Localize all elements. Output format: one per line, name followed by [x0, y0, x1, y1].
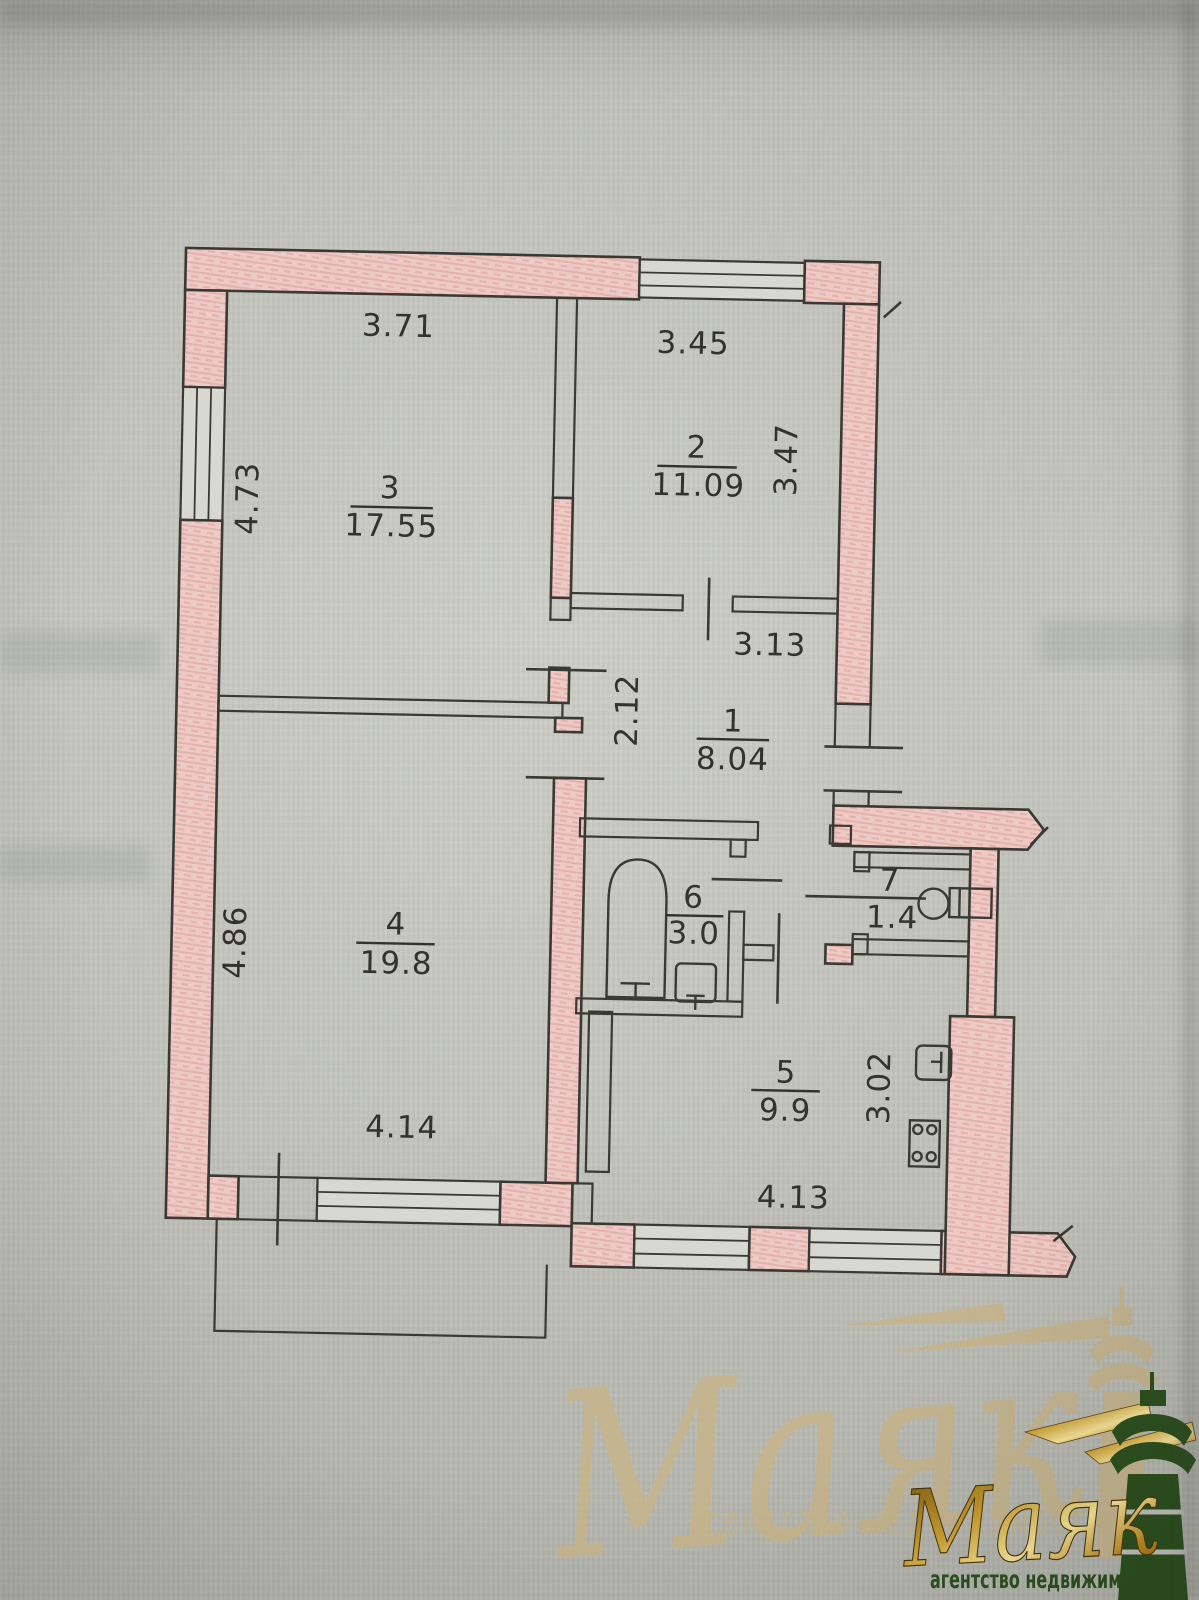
room-4-number: 4 [385, 906, 406, 942]
room-2-area: 11.09 [651, 467, 745, 505]
fraction-bar [753, 1090, 819, 1091]
room-7-label: 7 1.4 [866, 862, 920, 936]
room-4-label: 4 19.8 [357, 906, 435, 983]
room-6-label: 6 3.0 [666, 879, 722, 952]
wall-segment [571, 1223, 635, 1267]
room-1-label: 1 8.04 [696, 703, 771, 779]
room-6-area: 3.0 [667, 915, 720, 952]
corner-arrow-icon [885, 303, 900, 317]
stove-burner-icon [913, 1152, 922, 1161]
door-tick [825, 790, 901, 792]
room-7-number: 7 [879, 863, 900, 899]
wall-segment [804, 261, 880, 305]
door-tick [277, 1154, 279, 1244]
dim-room2-height: 3.47 [768, 423, 806, 497]
wall-segment [500, 1182, 573, 1226]
wall-segment [580, 818, 758, 840]
room-2-label: 2 11.09 [651, 429, 746, 505]
toilet-tank-icon [959, 888, 960, 917]
window [317, 1178, 501, 1225]
wall-segment [549, 668, 570, 703]
room-2-number: 2 [686, 429, 707, 465]
wall-segment [730, 839, 745, 856]
door-tick [713, 879, 781, 880]
wall-segment [576, 998, 742, 1016]
wall-segment [836, 304, 879, 705]
toilet-icon [918, 888, 949, 919]
wall-segment [571, 593, 683, 610]
door-tick [708, 579, 709, 639]
window [809, 1228, 942, 1274]
window [180, 387, 225, 521]
wall-segment [854, 852, 970, 869]
wall-segment [553, 298, 577, 498]
wall-segment [749, 1227, 810, 1271]
wall-segment [835, 704, 871, 748]
window [639, 259, 805, 300]
door-tick [826, 746, 902, 748]
wall-segment [183, 290, 227, 388]
dim-room3-width: 3.71 [362, 308, 436, 346]
dim-kitchen-height: 3.02 [861, 1051, 899, 1125]
stove-burner-icon [927, 1125, 936, 1134]
room-4-area: 19.8 [359, 945, 433, 983]
room-5-area: 9.9 [759, 1092, 812, 1129]
stove-burner-icon [913, 1125, 922, 1134]
wall-segment [546, 778, 586, 1184]
logo-tagline-text: агентство недвижимости [930, 1565, 1162, 1594]
wall-segment [825, 944, 852, 964]
wall-segment [852, 934, 867, 954]
stove-burner-icon [927, 1152, 936, 1161]
floor-plan-scan: Маяк агентство недвижимости [0, 0, 1199, 1600]
vent-duct [586, 1012, 612, 1172]
wall-segment [733, 596, 838, 613]
lighthouse-skirt-icon [1088, 1364, 1158, 1393]
room-6-number: 6 [683, 879, 704, 915]
dim-room2-width: 3.45 [656, 325, 730, 363]
door-tick [777, 914, 779, 1002]
dim-room4-height: 4.86 [217, 905, 255, 979]
wall-segment [550, 598, 570, 620]
wall-segment [208, 1176, 239, 1220]
outer-walls [165, 248, 1096, 1277]
room-7-area: 1.4 [866, 899, 919, 936]
room-1-area: 8.04 [696, 741, 770, 779]
wall-segment [555, 718, 582, 733]
wall-segment [854, 852, 869, 871]
lighthouse-skirt-icon [1090, 1336, 1154, 1365]
balcony-outline [214, 1219, 547, 1338]
wall-segment [743, 945, 773, 961]
wall-segment [727, 911, 744, 1001]
wall-segment [834, 791, 869, 807]
dim-room3-height: 4.73 [229, 461, 267, 535]
wall-segment [166, 520, 223, 1219]
room-1-number: 1 [723, 703, 744, 739]
scan-edge-shadow [1183, 0, 1199, 1600]
bathtub-icon [606, 859, 667, 998]
wall-segment [572, 1183, 593, 1223]
door-tick [527, 669, 605, 671]
door-tick [807, 896, 925, 898]
wall-segment [967, 848, 999, 1017]
room-3-number: 3 [379, 470, 400, 506]
logo-lighthouse-lamp-icon [1140, 1390, 1166, 1406]
dim-room4-width: 4.14 [365, 1109, 439, 1147]
wall-segment [833, 806, 1045, 850]
wall-segment [185, 248, 640, 299]
wall-segment [551, 498, 573, 598]
wall-segment [218, 696, 562, 718]
room-5-number: 5 [775, 1054, 796, 1090]
window [634, 1225, 750, 1270]
room-5-label: 5 9.9 [752, 1054, 820, 1129]
dim-kitchen-width: 4.13 [756, 1179, 830, 1217]
wall-segment [945, 1016, 1014, 1275]
room-3-label: 3 17.55 [344, 469, 439, 545]
room-3-area: 17.55 [344, 507, 438, 545]
door-tick [527, 777, 603, 779]
scan-edge-shadow [0, 0, 1199, 26]
lighthouse-lamp-icon [1112, 1308, 1132, 1326]
dim-hall-width: 3.13 [733, 626, 807, 664]
dim-hall-segment: 2.12 [609, 673, 647, 747]
wall-segment [852, 939, 968, 956]
